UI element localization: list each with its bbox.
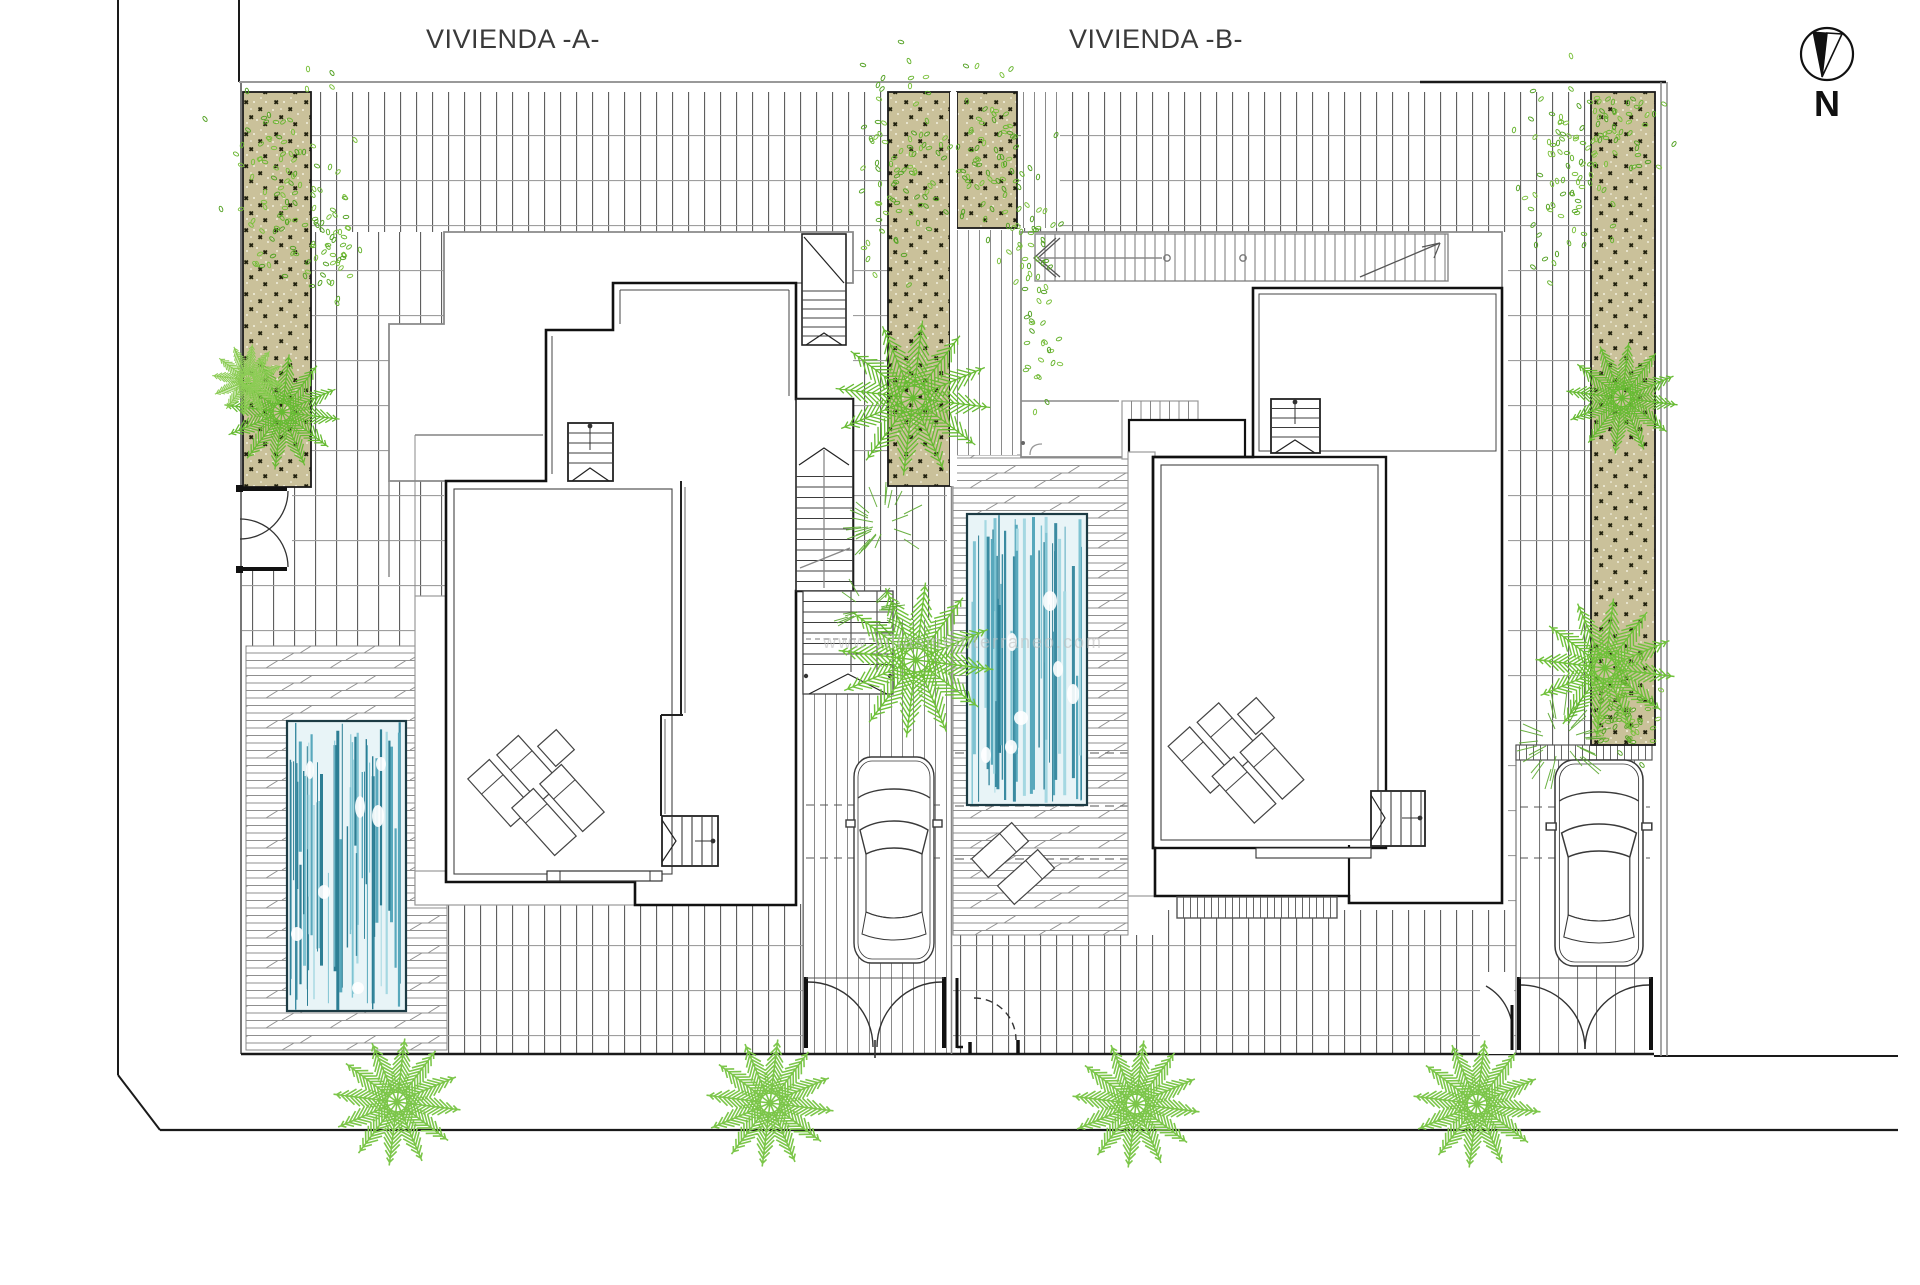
svg-text:N: N bbox=[1814, 83, 1840, 124]
svg-text:VIVIENDA -A-: VIVIENDA -A- bbox=[426, 24, 600, 54]
svg-text:VIVIENDA -B-: VIVIENDA -B- bbox=[1069, 24, 1243, 54]
svg-text:www.villasmediterraneo.com: www.villasmediterraneo.com bbox=[822, 632, 1103, 652]
